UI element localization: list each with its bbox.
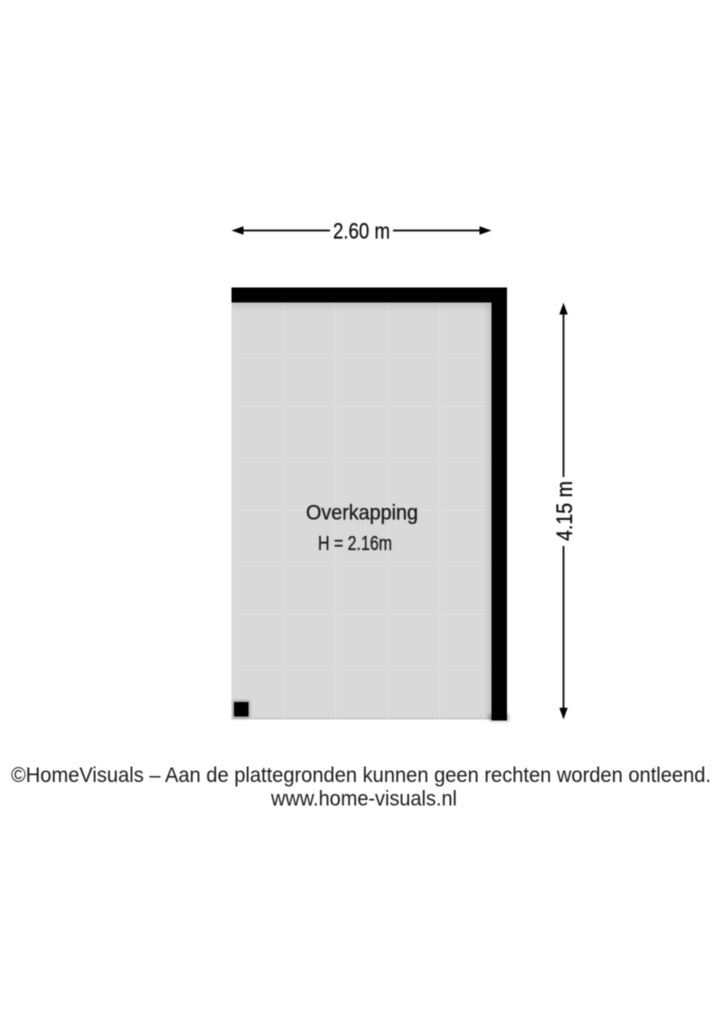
svg-text:H = 2.16m: H = 2.16m bbox=[318, 533, 392, 555]
svg-text:2.60 m: 2.60 m bbox=[333, 218, 390, 243]
svg-text:4.15 m: 4.15 m bbox=[552, 481, 577, 541]
svg-text:Overkapping: Overkapping bbox=[306, 502, 418, 525]
svg-text:www.home-visuals.nl: www.home-visuals.nl bbox=[270, 788, 457, 811]
svg-text:©HomeVisuals – Aan de plattegr: ©HomeVisuals – Aan de plattegronden kunn… bbox=[11, 764, 711, 787]
